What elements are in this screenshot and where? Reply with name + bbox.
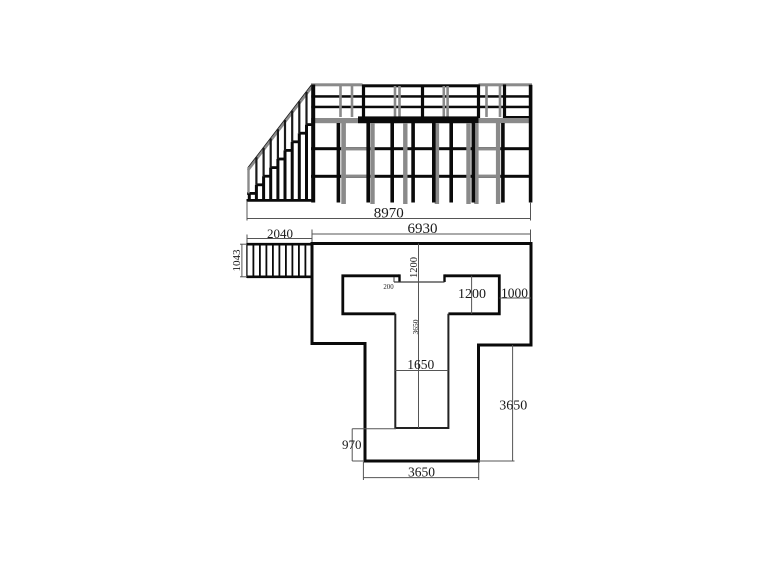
svg-text:2040: 2040 <box>267 226 293 241</box>
svg-text:6930: 6930 <box>408 221 438 237</box>
svg-text:1000: 1000 <box>501 285 528 300</box>
svg-text:200: 200 <box>383 284 394 291</box>
svg-text:1200: 1200 <box>458 287 486 302</box>
svg-text:3650: 3650 <box>411 319 420 334</box>
svg-text:1650: 1650 <box>407 357 434 372</box>
svg-text:8970: 8970 <box>374 206 404 222</box>
svg-text:1043: 1043 <box>231 249 243 272</box>
svg-text:970: 970 <box>342 437 362 452</box>
svg-text:3650: 3650 <box>408 464 435 479</box>
svg-text:3650: 3650 <box>499 399 527 414</box>
svg-text:1200: 1200 <box>409 257 420 278</box>
